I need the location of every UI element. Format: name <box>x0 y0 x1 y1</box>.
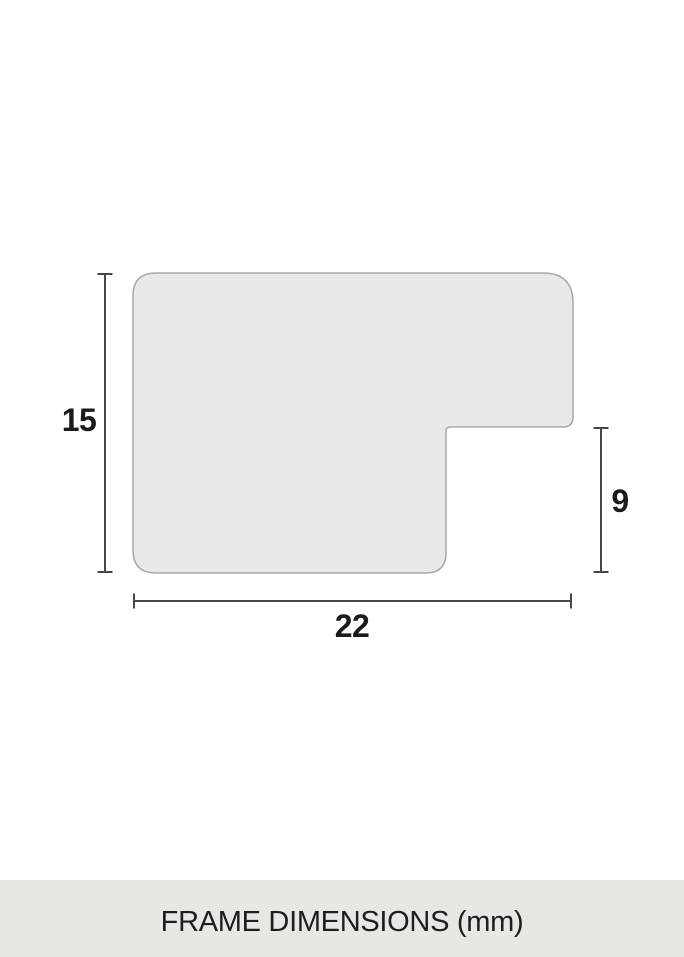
frame-dimensions-page: 15 22 9 FRAME DIMENSIONS (mm) <box>0 0 684 957</box>
caption-band: FRAME DIMENSIONS (mm) <box>0 880 684 957</box>
height-dimension-label: 15 <box>44 400 114 440</box>
profile-diagram-svg <box>0 0 684 700</box>
depth-dimension-label: 9 <box>598 481 642 521</box>
caption-text: FRAME DIMENSIONS (mm) <box>0 905 684 939</box>
frame-profile-shape <box>133 273 573 573</box>
width-dimension-label: 22 <box>312 606 392 646</box>
